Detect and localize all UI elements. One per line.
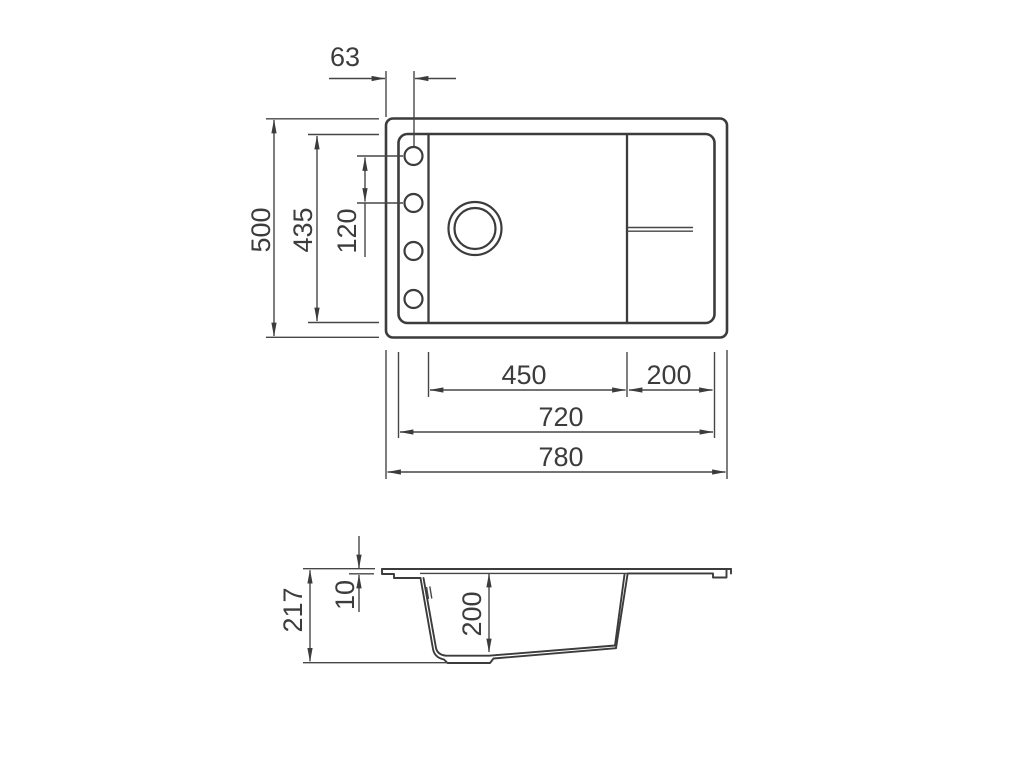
dim-overall-height: 217 [278, 569, 375, 662]
inner-basin-rectangle [399, 134, 715, 323]
plan-view: 63 500 435 120 450 [246, 42, 727, 479]
dim-faucet-hole-pitch: 120 [332, 156, 403, 257]
rim-left-lip-profile [382, 569, 421, 578]
faucet-hole-1 [405, 147, 423, 165]
rim-right-lip-profile [628, 569, 731, 578]
dim-bowl-depth: 200 [457, 574, 489, 652]
dim-faucet-hole-offset: 63 [329, 42, 456, 148]
dim-label-200-depth: 200 [457, 591, 487, 636]
faucet-hole-4 [405, 290, 423, 308]
drain-hole-outer-circle [449, 202, 502, 255]
dim-label-63: 63 [330, 42, 360, 72]
dim-label-450: 450 [501, 360, 546, 390]
bowl-inner-profile [424, 575, 625, 656]
bowl-outer-profile [421, 575, 628, 664]
dim-label-435: 435 [288, 207, 318, 252]
faucet-hole-2 [405, 194, 423, 212]
dim-label-780: 780 [538, 442, 583, 472]
drawing-page: 63 500 435 120 450 [0, 0, 1024, 768]
sink-technical-drawing: 63 500 435 120 450 [0, 0, 1024, 768]
dim-label-217: 217 [278, 587, 308, 632]
dim-label-720: 720 [538, 402, 583, 432]
dim-rim-height: 10 [330, 536, 374, 612]
drain-hole-inner-circle [455, 208, 496, 249]
section-view: 217 10 200 [278, 536, 731, 663]
dim-bowl-width: 450 [429, 352, 628, 397]
faucet-hole-3 [405, 242, 423, 260]
dim-drainboard-width: 200 [629, 360, 713, 390]
dim-label-10: 10 [330, 580, 360, 610]
dim-label-120: 120 [332, 208, 362, 253]
dim-label-500: 500 [246, 207, 276, 252]
dim-label-200: 200 [646, 360, 691, 390]
